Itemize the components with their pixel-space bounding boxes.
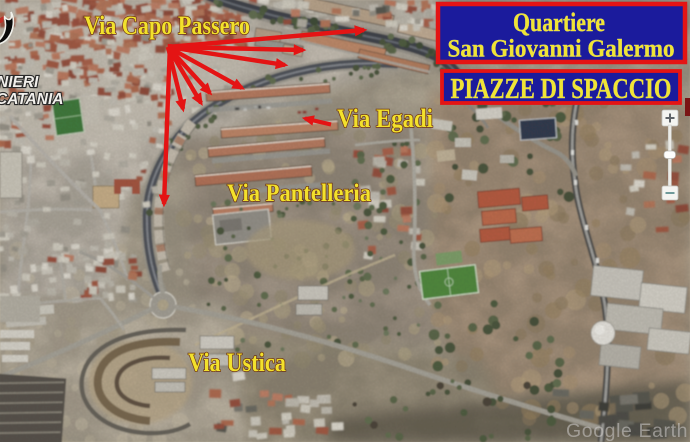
svg-text:San Giovanni Galermo: San Giovanni Galermo [448,36,675,63]
svg-text:Google Earth: Google Earth [566,420,688,442]
svg-text:Via Ustica: Via Ustica [188,348,286,377]
svg-text:NIERI: NIERI [0,74,39,91]
svg-text:Via Pantelleria: Via Pantelleria [227,180,371,207]
svg-text:Via Capo Passero: Via Capo Passero [84,11,250,40]
svg-text:PIAZZE DI SPACCIO: PIAZZE DI SPACCIO [451,73,672,105]
svg-text:CATANIA: CATANIA [0,91,63,108]
svg-text:Via Egadi: Via Egadi [337,104,433,133]
svg-text:Quartiere: Quartiere [513,8,605,37]
